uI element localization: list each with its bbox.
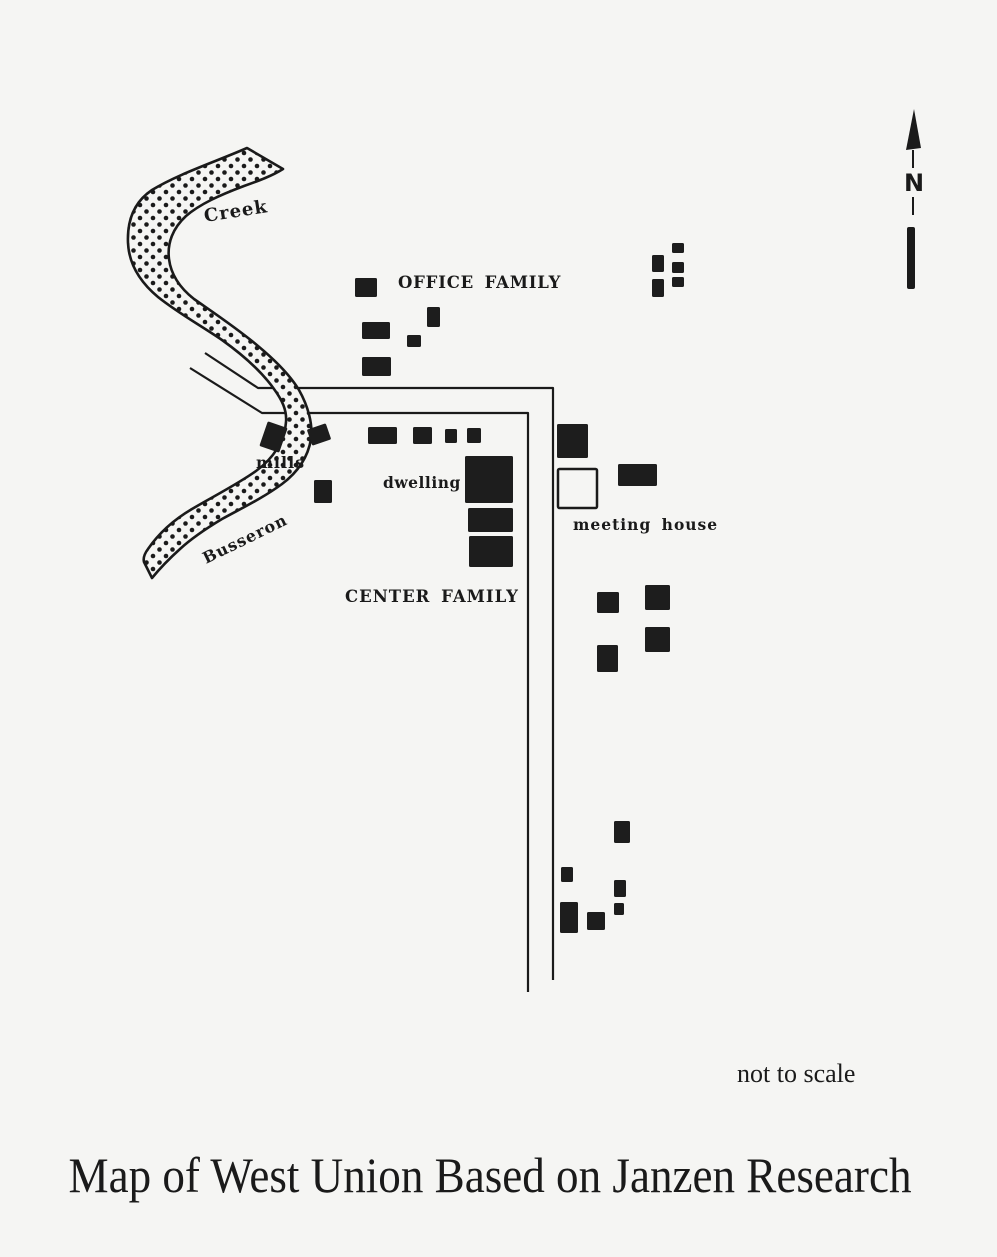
office-family-building xyxy=(362,322,390,339)
north-arrow-tail xyxy=(907,227,915,289)
dwelling-label: dwelling xyxy=(383,473,461,492)
meeting-house-label: meeting house xyxy=(573,515,718,534)
map-canvas: N Creek Busseron OFFICE FAMILY CENTER FA… xyxy=(0,0,997,1257)
office-family-building xyxy=(407,335,421,347)
map-page: N Creek Busseron OFFICE FAMILY CENTER FA… xyxy=(0,0,997,1257)
northeast-building xyxy=(672,243,684,253)
north-label: N xyxy=(904,169,924,197)
northeast-building xyxy=(672,277,684,287)
east-building xyxy=(557,424,588,458)
meeting-house xyxy=(558,469,597,508)
south-building xyxy=(560,902,578,933)
center-family-building xyxy=(467,428,481,443)
east-building xyxy=(618,464,657,486)
map-title: Map of West Union Based on Janzen Resear… xyxy=(69,1147,912,1203)
center-family-building xyxy=(413,427,432,444)
center-family-building xyxy=(445,429,457,443)
map-labels: Creek Busseron OFFICE FAMILY CENTER FAMI… xyxy=(199,196,718,606)
office-family-building xyxy=(355,278,377,297)
northeast-building xyxy=(652,255,664,272)
office-family-label: OFFICE FAMILY xyxy=(398,273,561,292)
north-arrow: N xyxy=(904,109,924,289)
office-family-building xyxy=(427,307,440,327)
mill-area-building xyxy=(314,480,332,503)
dwelling-building xyxy=(468,508,513,532)
dwelling-building xyxy=(469,536,513,567)
northeast-building xyxy=(652,279,664,297)
road-upper-edge xyxy=(205,353,553,980)
dwelling-building xyxy=(465,456,513,503)
south-building xyxy=(614,903,624,915)
center-family-label: CENTER FAMILY xyxy=(345,587,519,606)
south-building xyxy=(614,880,626,897)
mills-label: mills xyxy=(256,453,305,472)
east-building xyxy=(645,627,670,652)
east-building xyxy=(597,592,619,613)
east-building xyxy=(645,585,670,610)
south-building xyxy=(587,912,605,930)
center-family-building xyxy=(368,427,397,444)
south-building xyxy=(614,821,630,843)
south-building xyxy=(561,867,573,882)
scale-note: not to scale xyxy=(737,1059,855,1088)
office-family-building xyxy=(362,357,391,376)
north-arrow-head xyxy=(906,109,921,150)
northeast-building xyxy=(672,262,684,273)
east-building xyxy=(597,645,618,672)
roads xyxy=(190,353,553,992)
